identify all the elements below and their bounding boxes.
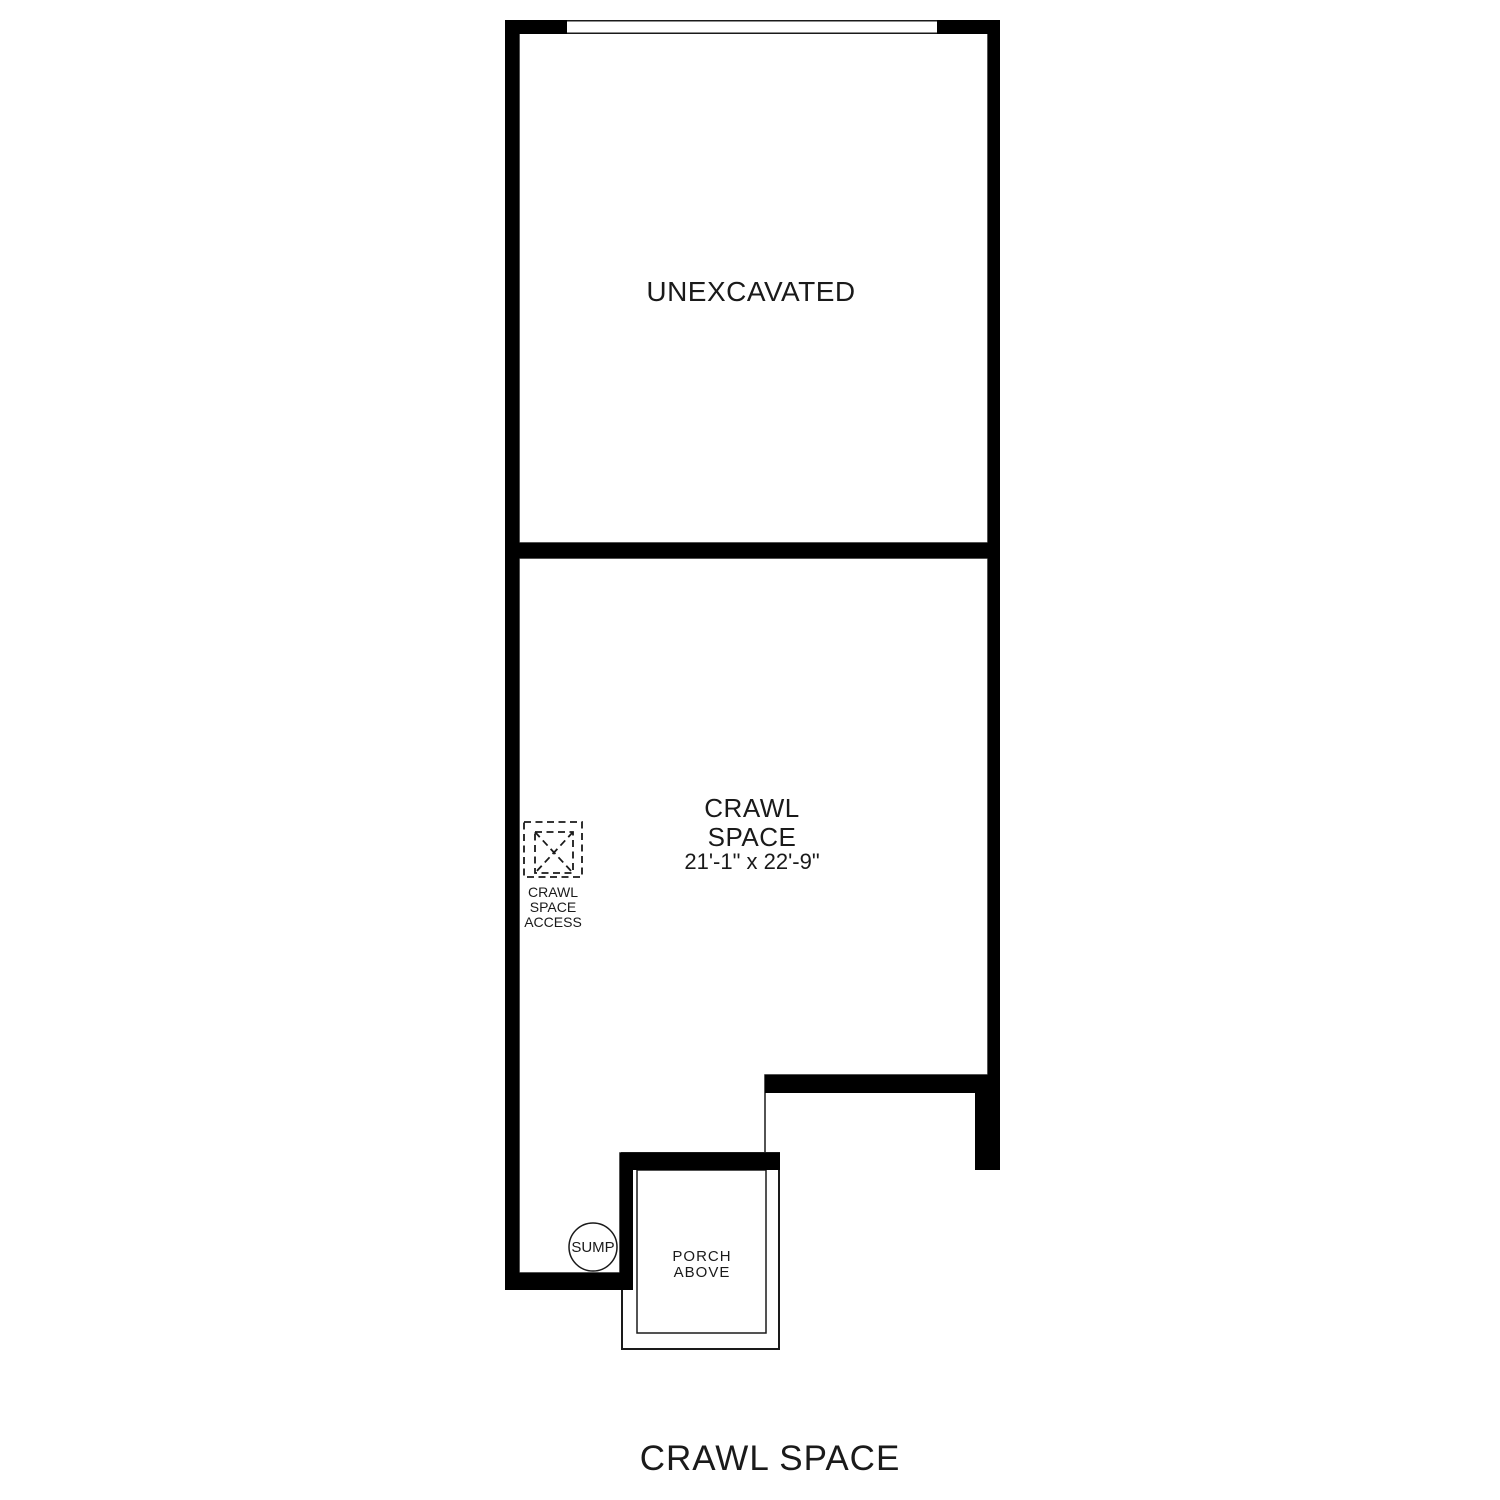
floor-plan-page: SUMP UNEXCAVATED CRAWL SPACE 21'-1" x 22… xyxy=(0,0,1500,1500)
crawl-space-label-line2: SPACE xyxy=(708,822,797,852)
unexcavated-label: UNEXCAVATED xyxy=(646,276,855,307)
crawl-space-label-line1: CRAWL xyxy=(704,793,799,823)
access-label-line2: SPACE xyxy=(530,899,576,915)
wall-step-horizontal xyxy=(765,1075,1000,1093)
wall-left xyxy=(505,20,519,1290)
crawl-space-dimensions: 21'-1" x 22'-9" xyxy=(684,849,819,874)
crawl-space-access-hatch-icon xyxy=(524,822,582,877)
access-label-line1: CRAWL xyxy=(528,884,578,900)
wall-porch-left xyxy=(620,1153,633,1290)
wall-middle-divider xyxy=(505,543,1000,558)
access-label-line3: ACCESS xyxy=(524,914,582,930)
top-wall-opening-band xyxy=(567,20,937,34)
sheet-title: CRAWL SPACE xyxy=(640,1439,901,1478)
top-wall-opening xyxy=(567,20,937,34)
sump-label: SUMP xyxy=(571,1239,614,1256)
wall-bottom-left xyxy=(505,1273,633,1290)
porch-label-line1: PORCH xyxy=(672,1248,731,1265)
wall-step-right-stub xyxy=(975,1093,1000,1170)
wall-porch-top xyxy=(620,1153,780,1170)
porch-label-line2: ABOVE xyxy=(674,1264,731,1281)
sump-pit-circle-icon: SUMP xyxy=(569,1223,617,1271)
floor-plan-drawing: SUMP UNEXCAVATED CRAWL SPACE 21'-1" x 22… xyxy=(0,0,1500,1500)
